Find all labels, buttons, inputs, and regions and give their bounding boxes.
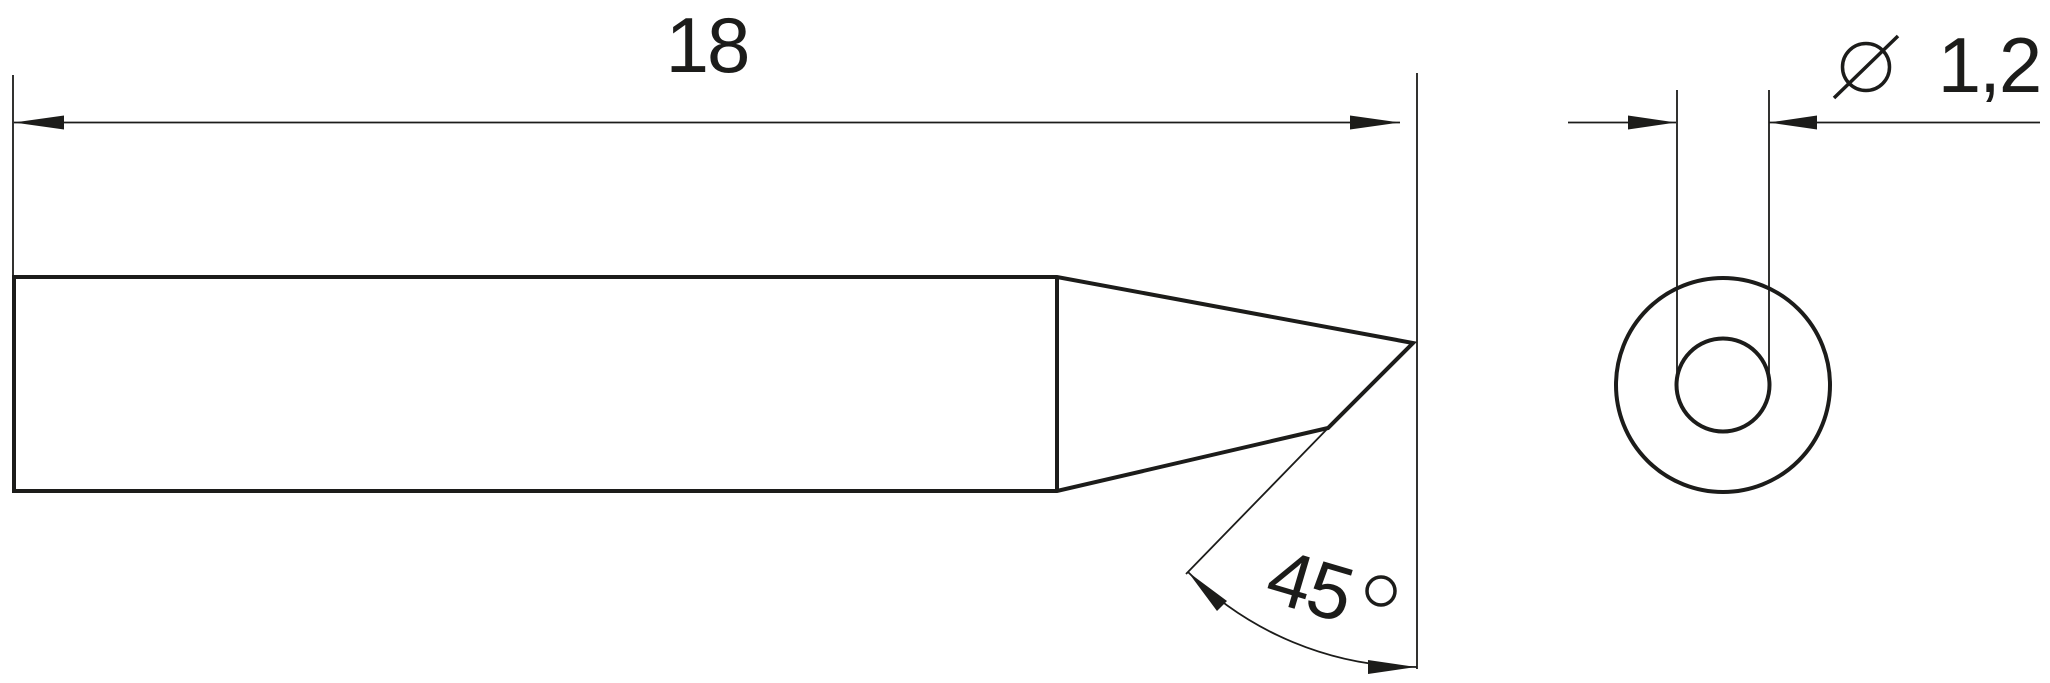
inner-diameter-circle xyxy=(1677,339,1770,432)
drawing-canvas: 18 45 xyxy=(0,0,2050,683)
side-view: 18 45 xyxy=(13,1,1417,674)
diameter-arrowhead-right-icon xyxy=(1769,116,1817,130)
angle-arrowhead-lower-icon xyxy=(1368,660,1416,674)
front-view: 1,2 xyxy=(1568,21,2040,492)
diameter-arrowhead-left-icon xyxy=(1628,116,1676,130)
length-dimension-label: 18 xyxy=(666,1,749,89)
diameter-symbol-icon xyxy=(1834,36,1898,98)
angle-arrowhead-upper-icon xyxy=(1188,572,1227,611)
degree-symbol-icon xyxy=(1367,577,1395,605)
angle-dimension-label: 45 xyxy=(1257,531,1361,639)
tip-body-outline xyxy=(14,277,1413,491)
length-arrowhead-left-icon xyxy=(14,116,64,130)
length-arrowhead-right-icon xyxy=(1350,116,1400,130)
technical-drawing: 18 45 xyxy=(0,0,2050,683)
diameter-dimension-label: 1,2 xyxy=(1938,21,2040,109)
outer-diameter-circle xyxy=(1616,278,1830,492)
